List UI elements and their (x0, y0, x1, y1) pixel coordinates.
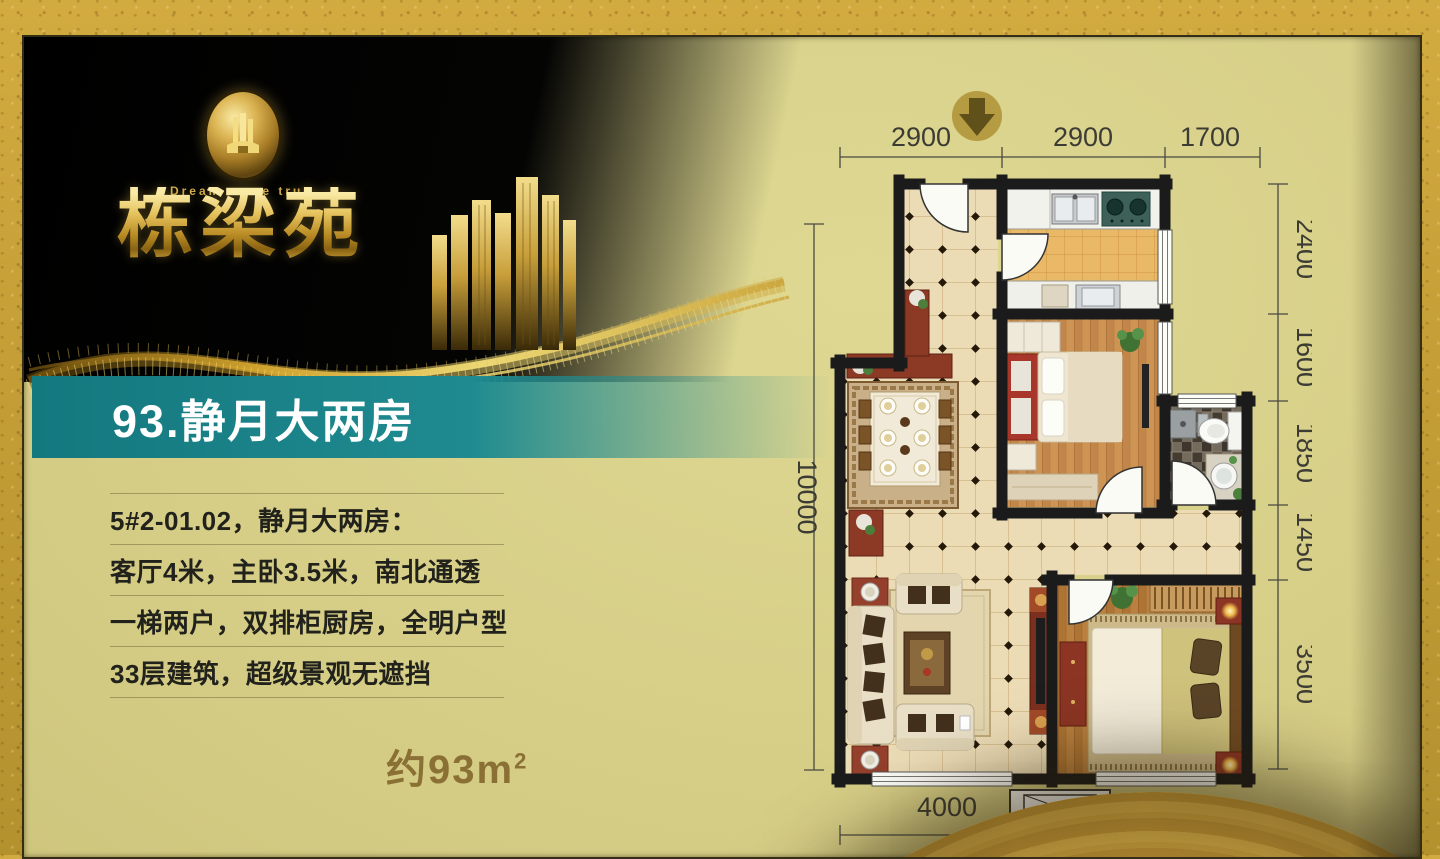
pillow (1190, 638, 1222, 676)
tall-cabinet (1060, 642, 1086, 726)
pillow (1042, 400, 1064, 436)
details-list: 5#2-01.02，静月大两房： 客厅4米，主卧3.5米，南北通透 一梯两户，双… (110, 493, 504, 698)
detail-line: 33层建筑，超级景观无遮挡 (110, 646, 504, 698)
area-value: 约93m (386, 748, 514, 792)
pillow (1190, 683, 1221, 720)
emblem-building-icon (223, 113, 263, 157)
area-label: 约93m2 (386, 737, 528, 795)
kitchen-basin (1042, 285, 1068, 307)
dim-top: 2900 (891, 122, 951, 152)
poster-root: { "brand": { "name": "栋梁苑", "tagline": "… (0, 0, 1440, 855)
brand-name: 栋梁苑 (117, 187, 366, 263)
pillow (1042, 358, 1064, 394)
card: Dream come true 栋梁苑 (22, 35, 1422, 859)
dim-right: 2400 (1291, 219, 1312, 279)
swoosh-ribbon (29, 276, 789, 388)
dim-left: 10000 (792, 459, 822, 534)
tv (1036, 618, 1045, 704)
wall-tv (1142, 364, 1149, 428)
entry-arrow-icon (952, 91, 1002, 141)
detail-line: 5#2-01.02，静月大两房： (110, 493, 504, 544)
dim-top: 2900 (1053, 122, 1113, 152)
dim-right: 3500 (1291, 644, 1312, 704)
window (1158, 230, 1172, 304)
dresser (1006, 322, 1060, 352)
headboard (1230, 624, 1243, 758)
area-superscript: 2 (514, 749, 528, 774)
dim-right: 1450 (1291, 512, 1312, 572)
dim-top: 1700 (1180, 122, 1240, 152)
window (1158, 322, 1172, 394)
dim-right: 1600 (1291, 327, 1312, 387)
dim-bottom: 4000 (917, 792, 977, 822)
nightstand (1006, 444, 1036, 470)
detail-line: 客厅4米，主卧3.5米，南北通透 (110, 544, 504, 595)
window (872, 772, 1012, 786)
buildings-silhouette-icon (424, 165, 609, 355)
window (1178, 394, 1236, 408)
window (1096, 772, 1216, 786)
right-edge-shadow (1350, 37, 1420, 857)
section-banner-title: 93.静月大两房 (32, 385, 416, 450)
brand-emblem (204, 89, 282, 181)
floor-plan: AC 2900 2900 1700 10000 2400 (772, 82, 1312, 857)
detail-line: 一梯两户，双排柜厨房，全明户型 (110, 595, 504, 646)
dim-right: 1850 (1291, 423, 1312, 483)
section-banner: 93.静月大两房 (32, 376, 832, 458)
